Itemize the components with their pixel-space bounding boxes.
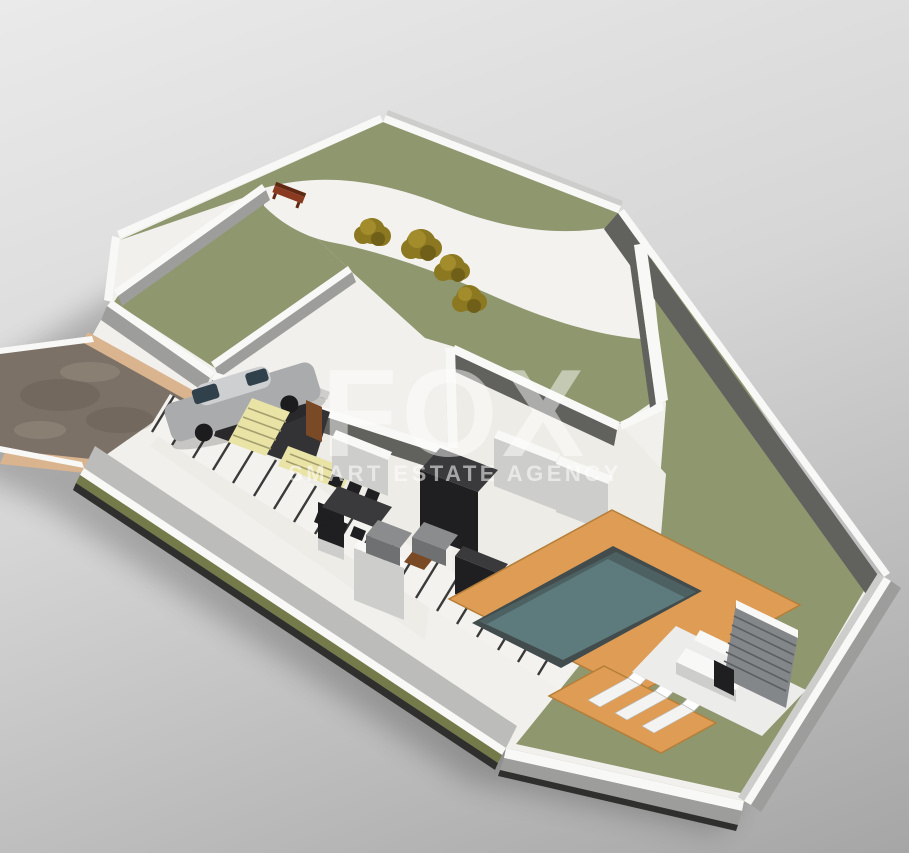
- watermark-tagline: SMART ESTATE AGENCY: [288, 461, 622, 486]
- front-door: [306, 400, 322, 442]
- render-canvas: FOX SMART ESTATE AGENCY: [0, 0, 909, 853]
- floorplan-render: FOX SMART ESTATE AGENCY: [0, 0, 909, 853]
- watermark: FOX SMART ESTATE AGENCY: [288, 345, 622, 486]
